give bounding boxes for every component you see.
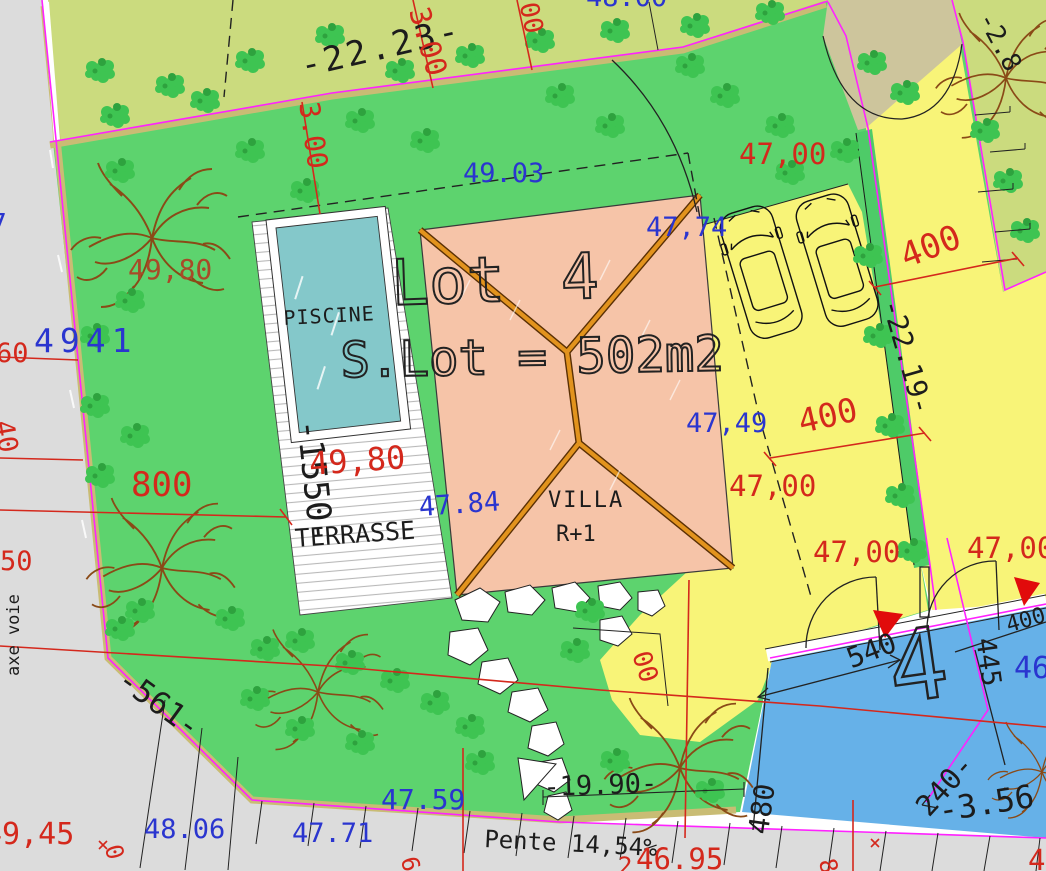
level-4700-top: 47,00 bbox=[739, 140, 826, 169]
level-4980-terrace: 49,80 bbox=[308, 441, 406, 480]
level-4784: 47.84 bbox=[418, 488, 501, 521]
site-plan: -22.23- 3.00 00 3.00 48.00 49.03 7 49,80… bbox=[0, 0, 1046, 871]
level-4903: 49.03 bbox=[463, 160, 544, 187]
level-4771: 47.71 bbox=[292, 820, 373, 847]
road-axis-label: axe voie bbox=[6, 594, 23, 676]
level-4700-low: 47,00 bbox=[813, 538, 900, 567]
dim-1990: -19.90- bbox=[543, 770, 658, 801]
level-4700-mid: 47,00 bbox=[729, 472, 816, 501]
dim-setback-300-partial: 00 bbox=[515, 0, 547, 36]
level-4800-partial: 48.00 bbox=[586, 0, 667, 11]
level-4980-garden: 49,80 bbox=[128, 256, 212, 284]
level-4945: 49,45 bbox=[0, 820, 74, 850]
site-plan-svg bbox=[0, 0, 1046, 871]
pool-label: PISCINE bbox=[283, 303, 375, 328]
level-4806: 48.06 bbox=[144, 816, 225, 843]
level-4774: 47,74 bbox=[646, 214, 727, 241]
lot-title: Lot 4 bbox=[390, 245, 600, 315]
level-4-partial: 4 bbox=[1028, 846, 1045, 871]
level-4749: 47,49 bbox=[686, 410, 767, 437]
dim-setback-300-left: 3.00 bbox=[294, 100, 331, 171]
lot-area: S.Lot = 502m2 bbox=[340, 329, 724, 385]
dim-800: 800 bbox=[131, 468, 192, 502]
road-dim-50: 50 bbox=[0, 548, 33, 575]
level-4700-right: 47,00 bbox=[967, 534, 1046, 563]
road-frag-2: 2 bbox=[618, 854, 632, 871]
villa-label: VILLA bbox=[548, 490, 624, 512]
road-dim-60: 60 bbox=[0, 340, 29, 367]
level-4695: 46.95 bbox=[636, 845, 723, 871]
level-4759: 47.59 bbox=[381, 786, 465, 814]
level-4941: 4941 bbox=[34, 324, 137, 357]
villa-floor-label: R+1 bbox=[556, 524, 596, 546]
road-dim-40: 40 bbox=[0, 418, 22, 455]
dim-445: 445 bbox=[971, 636, 1005, 688]
level-7-partial: 7 bbox=[0, 210, 7, 238]
dim-480: 480 bbox=[745, 782, 780, 836]
level-46-partial: 46 bbox=[1014, 654, 1046, 684]
